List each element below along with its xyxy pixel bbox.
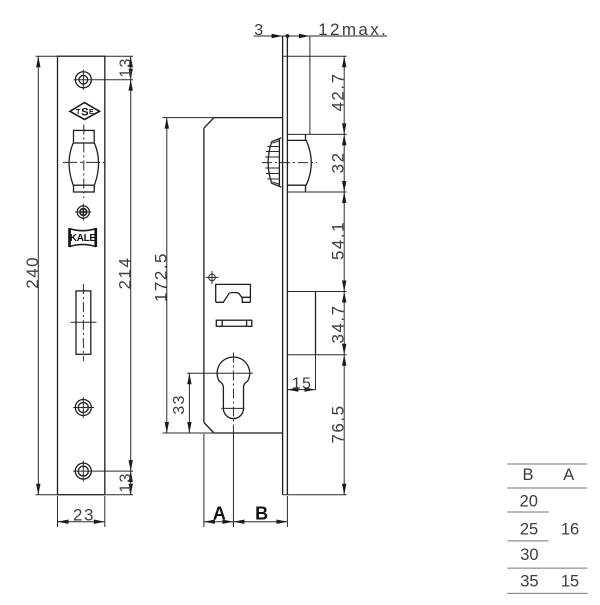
svg-text:3: 3 xyxy=(254,22,264,39)
svg-text:12max.: 12max. xyxy=(318,20,388,39)
svg-text:54.1: 54.1 xyxy=(329,221,348,260)
svg-text:A: A xyxy=(563,466,574,484)
svg-text:13: 13 xyxy=(117,57,134,77)
svg-text:15: 15 xyxy=(292,376,312,393)
svg-text:S: S xyxy=(81,107,88,119)
svg-text:A: A xyxy=(213,504,226,524)
svg-text:76.5: 76.5 xyxy=(329,404,348,443)
svg-text:16: 16 xyxy=(561,521,579,539)
svg-text:35: 35 xyxy=(520,573,538,591)
svg-text:B: B xyxy=(522,466,533,484)
svg-text:E: E xyxy=(89,109,94,116)
svg-text:15: 15 xyxy=(561,573,579,591)
svg-text:13: 13 xyxy=(117,472,134,492)
svg-text:240: 240 xyxy=(23,256,42,289)
svg-text:32: 32 xyxy=(329,151,348,173)
svg-text:34.7: 34.7 xyxy=(329,304,348,343)
svg-text:20: 20 xyxy=(520,493,538,511)
svg-text:30: 30 xyxy=(520,546,538,564)
svg-text:KALE: KALE xyxy=(70,233,97,244)
svg-text:23: 23 xyxy=(73,506,95,525)
svg-text:42.7: 42.7 xyxy=(329,72,348,111)
svg-text:25: 25 xyxy=(520,521,538,539)
svg-text:33: 33 xyxy=(171,394,188,414)
svg-text:214: 214 xyxy=(115,257,134,290)
svg-text:B: B xyxy=(255,504,268,524)
svg-text:172.5: 172.5 xyxy=(151,252,170,302)
